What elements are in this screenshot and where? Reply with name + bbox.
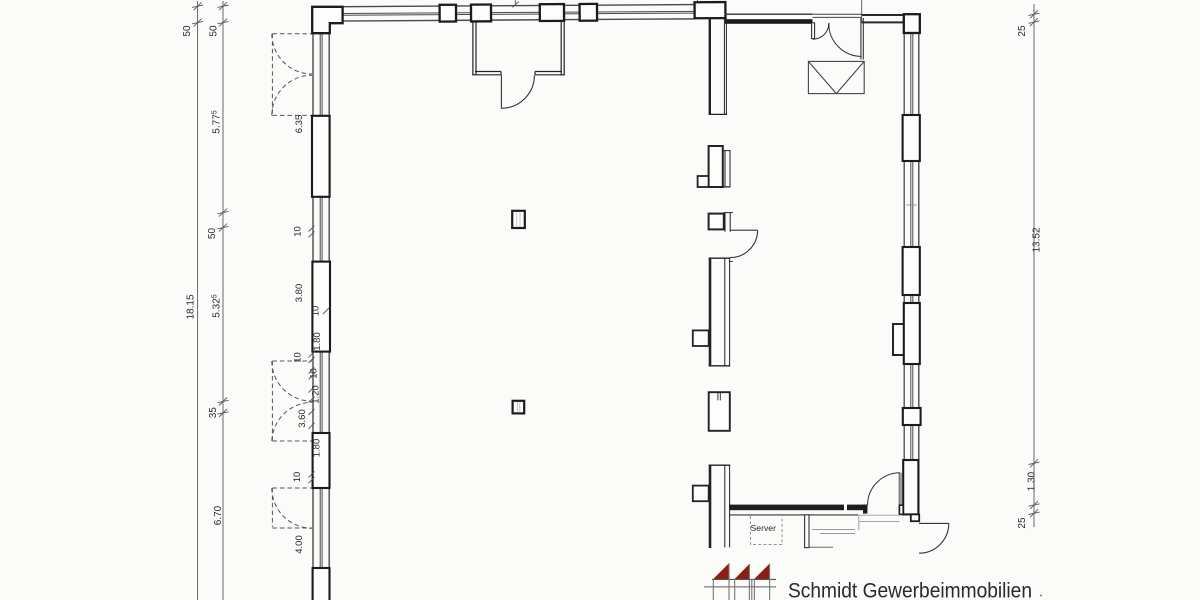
svg-text:1.20: 1.20 [311, 385, 322, 404]
svg-text:25: 25 [1017, 517, 1028, 529]
svg-text:Schmidt Gewerbeimmobilien: Schmidt Gewerbeimmobilien [788, 579, 1032, 600]
svg-text:35: 35 [208, 407, 219, 419]
svg-text:Server: Server [751, 523, 777, 533]
svg-text:3.80: 3.80 [294, 284, 305, 303]
svg-text:6.70: 6.70 [213, 505, 224, 525]
svg-text:10: 10 [293, 226, 304, 237]
svg-text:13.52: 13.52 [1032, 227, 1043, 252]
svg-text:4.00: 4.00 [294, 535, 305, 554]
svg-text:5.325: 5.325 [212, 294, 223, 317]
svg-text:1.80: 1.80 [312, 332, 323, 351]
svg-text:6.35: 6.35 [294, 115, 305, 134]
svg-text:18.15: 18.15 [186, 294, 197, 319]
svg-text:10: 10 [311, 306, 322, 317]
svg-text:50: 50 [207, 228, 218, 240]
svg-text:3.60: 3.60 [297, 409, 308, 428]
svg-text:50: 50 [209, 25, 220, 37]
svg-text:50: 50 [182, 25, 193, 37]
svg-text:10: 10 [292, 472, 303, 483]
svg-text:25: 25 [1017, 25, 1028, 37]
svg-text:1.30: 1.30 [1027, 471, 1038, 491]
svg-text:10: 10 [293, 352, 304, 363]
svg-text:5.775: 5.775 [212, 110, 223, 133]
svg-text:1.80: 1.80 [312, 439, 323, 458]
